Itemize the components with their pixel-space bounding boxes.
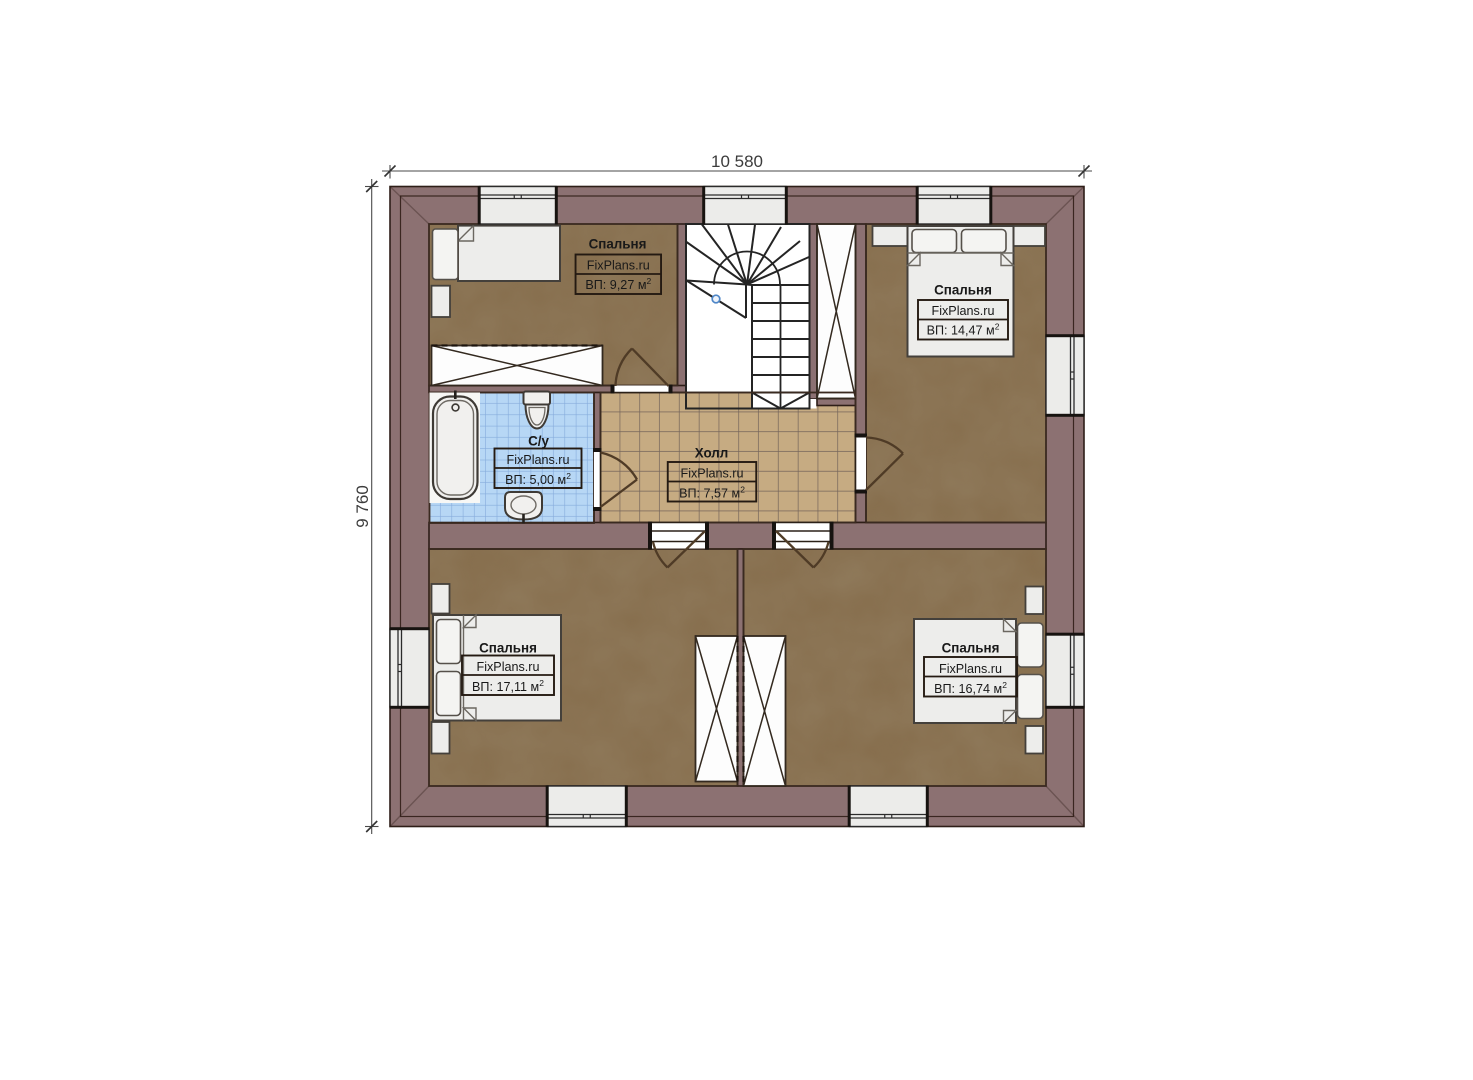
svg-text:Спальня: Спальня <box>479 641 537 656</box>
svg-text:Спальня: Спальня <box>942 641 1000 656</box>
svg-text:ВП: 16,74 м2: ВП: 16,74 м2 <box>934 680 1007 696</box>
svg-text:Спальня: Спальня <box>934 283 992 298</box>
svg-text:FixPlans.ru: FixPlans.ru <box>477 660 540 674</box>
svg-text:FixPlans.ru: FixPlans.ru <box>587 259 650 273</box>
svg-text:ВП: 14,47 м2: ВП: 14,47 м2 <box>927 322 1000 338</box>
svg-text:Холл: Холл <box>695 446 729 461</box>
svg-text:ВП: 7,57 м2: ВП: 7,57 м2 <box>679 485 745 501</box>
svg-text:Спальня: Спальня <box>589 237 647 252</box>
svg-text:10 580: 10 580 <box>711 152 763 171</box>
svg-text:9 760: 9 760 <box>353 485 372 528</box>
svg-text:FixPlans.ru: FixPlans.ru <box>681 467 744 481</box>
svg-text:ВП: 5,00 м2: ВП: 5,00 м2 <box>505 471 571 487</box>
svg-text:FixPlans.ru: FixPlans.ru <box>932 304 995 318</box>
svg-text:С/у: С/у <box>528 434 549 449</box>
svg-text:FixPlans.ru: FixPlans.ru <box>939 662 1002 676</box>
svg-text:ВП: 9,27 м2: ВП: 9,27 м2 <box>585 276 651 292</box>
svg-text:ВП: 17,11 м2: ВП: 17,11 м2 <box>472 678 544 694</box>
svg-text:FixPlans.ru: FixPlans.ru <box>507 453 570 467</box>
